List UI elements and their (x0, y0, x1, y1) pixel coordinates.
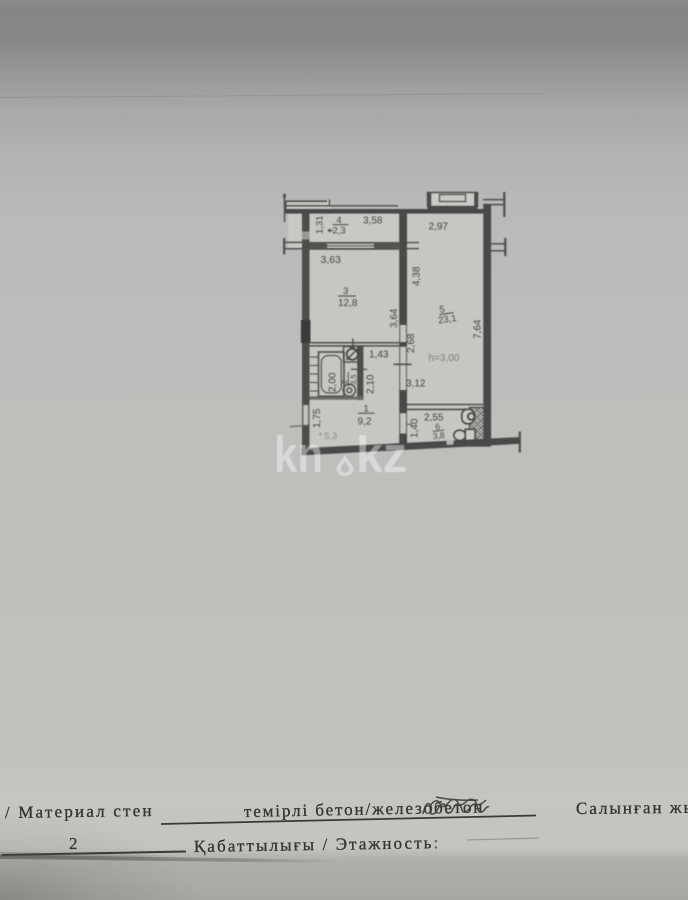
svg-text:3: 3 (343, 286, 348, 297)
svg-text:2,00: 2,00 (328, 372, 339, 392)
svg-text:3,8: 3,8 (432, 430, 445, 441)
svg-text:1,43: 1,43 (369, 350, 389, 361)
svg-text:1,31: 1,31 (315, 216, 326, 235)
svg-text:Қабаттылығы / Этажность:: Қабаттылығы / Этажность: (194, 833, 441, 856)
svg-text:kz: kz (356, 426, 407, 483)
svg-text:1,75: 1,75 (312, 408, 323, 428)
svg-text:/ Материал стен: / Материал стен (5, 801, 154, 822)
svg-text:2: 2 (340, 380, 349, 384)
svg-text:2: 2 (69, 834, 78, 853)
svg-text:2,10: 2,10 (366, 374, 377, 394)
svg-text:12,8: 12,8 (338, 298, 358, 309)
svg-text:3,64: 3,64 (389, 308, 400, 328)
svg-text:h=3,00: h=3,00 (429, 353, 460, 364)
svg-text:4: 4 (337, 215, 342, 225)
svg-text:kn: kn (274, 426, 323, 483)
svg-text:3,5: 3,5 (349, 375, 358, 385)
svg-text:Салынған жыл: Салынған жыл (576, 798, 688, 818)
svg-text:3,58: 3,58 (363, 216, 383, 227)
svg-text:2,97: 2,97 (429, 222, 449, 233)
svg-text:2,68: 2,68 (406, 333, 417, 353)
svg-text:2,3: 2,3 (333, 226, 346, 237)
svg-text:3,63: 3,63 (321, 254, 342, 266)
svg-text:7,64: 7,64 (473, 319, 484, 339)
svg-text:1,40: 1,40 (410, 418, 421, 438)
svg-text:4,38: 4,38 (412, 266, 423, 286)
svg-text:3,12: 3,12 (406, 379, 426, 390)
